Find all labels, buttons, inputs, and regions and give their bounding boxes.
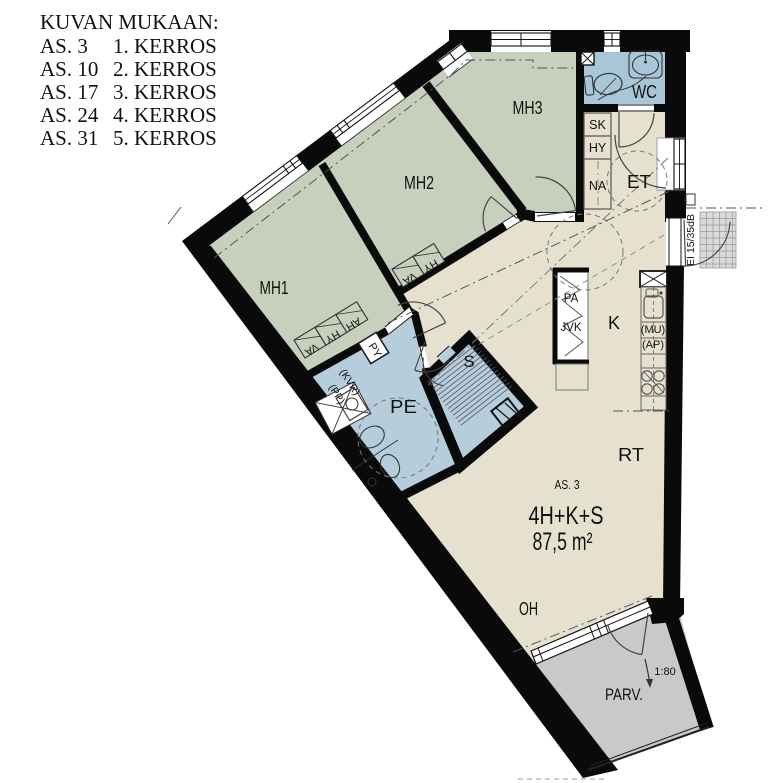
svg-text:4. KERROS: 4. KERROS: [113, 103, 217, 127]
svg-text:K: K: [608, 313, 620, 333]
svg-text:5. KERROS: 5. KERROS: [113, 126, 217, 150]
svg-text:MH1: MH1: [260, 278, 289, 298]
svg-text:KUVAN MUKAAN:: KUVAN MUKAAN:: [40, 10, 219, 34]
svg-text:S: S: [463, 352, 474, 371]
svg-text:1:80: 1:80: [654, 666, 675, 678]
svg-text:AS. 31: AS. 31: [40, 126, 98, 150]
svg-text:PARV.: PARV.: [605, 685, 643, 704]
svg-text:AS. 3: AS. 3: [555, 477, 580, 492]
svg-text:AS. 3: AS. 3: [40, 34, 88, 58]
svg-text:MH2: MH2: [404, 173, 434, 193]
svg-text:SK: SK: [589, 118, 606, 132]
svg-text:OH: OH: [519, 599, 538, 619]
svg-text:AS. 24: AS. 24: [40, 103, 99, 127]
svg-text:PA: PA: [564, 293, 579, 305]
svg-text:JVK: JVK: [560, 322, 581, 334]
svg-text:WC: WC: [632, 82, 657, 102]
svg-text:(MU): (MU): [641, 324, 665, 336]
svg-text:MH3: MH3: [513, 98, 543, 118]
svg-text:(AP): (AP): [642, 339, 664, 351]
svg-text:3. KERROS: 3. KERROS: [113, 80, 217, 104]
svg-text:AS. 10: AS. 10: [40, 57, 98, 81]
svg-text:HY: HY: [589, 141, 607, 155]
svg-text:87,5 m²: 87,5 m²: [533, 528, 593, 556]
svg-text:2. KERROS: 2. KERROS: [113, 57, 217, 81]
svg-text:RT: RT: [618, 445, 644, 465]
svg-text:4H+K+S: 4H+K+S: [529, 502, 604, 530]
svg-text:EI 15/35dB: EI 15/35dB: [685, 214, 697, 266]
svg-text:1. KERROS: 1. KERROS: [113, 34, 217, 58]
svg-text:AS. 17: AS. 17: [40, 80, 98, 104]
svg-text:ET: ET: [627, 172, 651, 192]
svg-text:PE: PE: [390, 397, 417, 417]
